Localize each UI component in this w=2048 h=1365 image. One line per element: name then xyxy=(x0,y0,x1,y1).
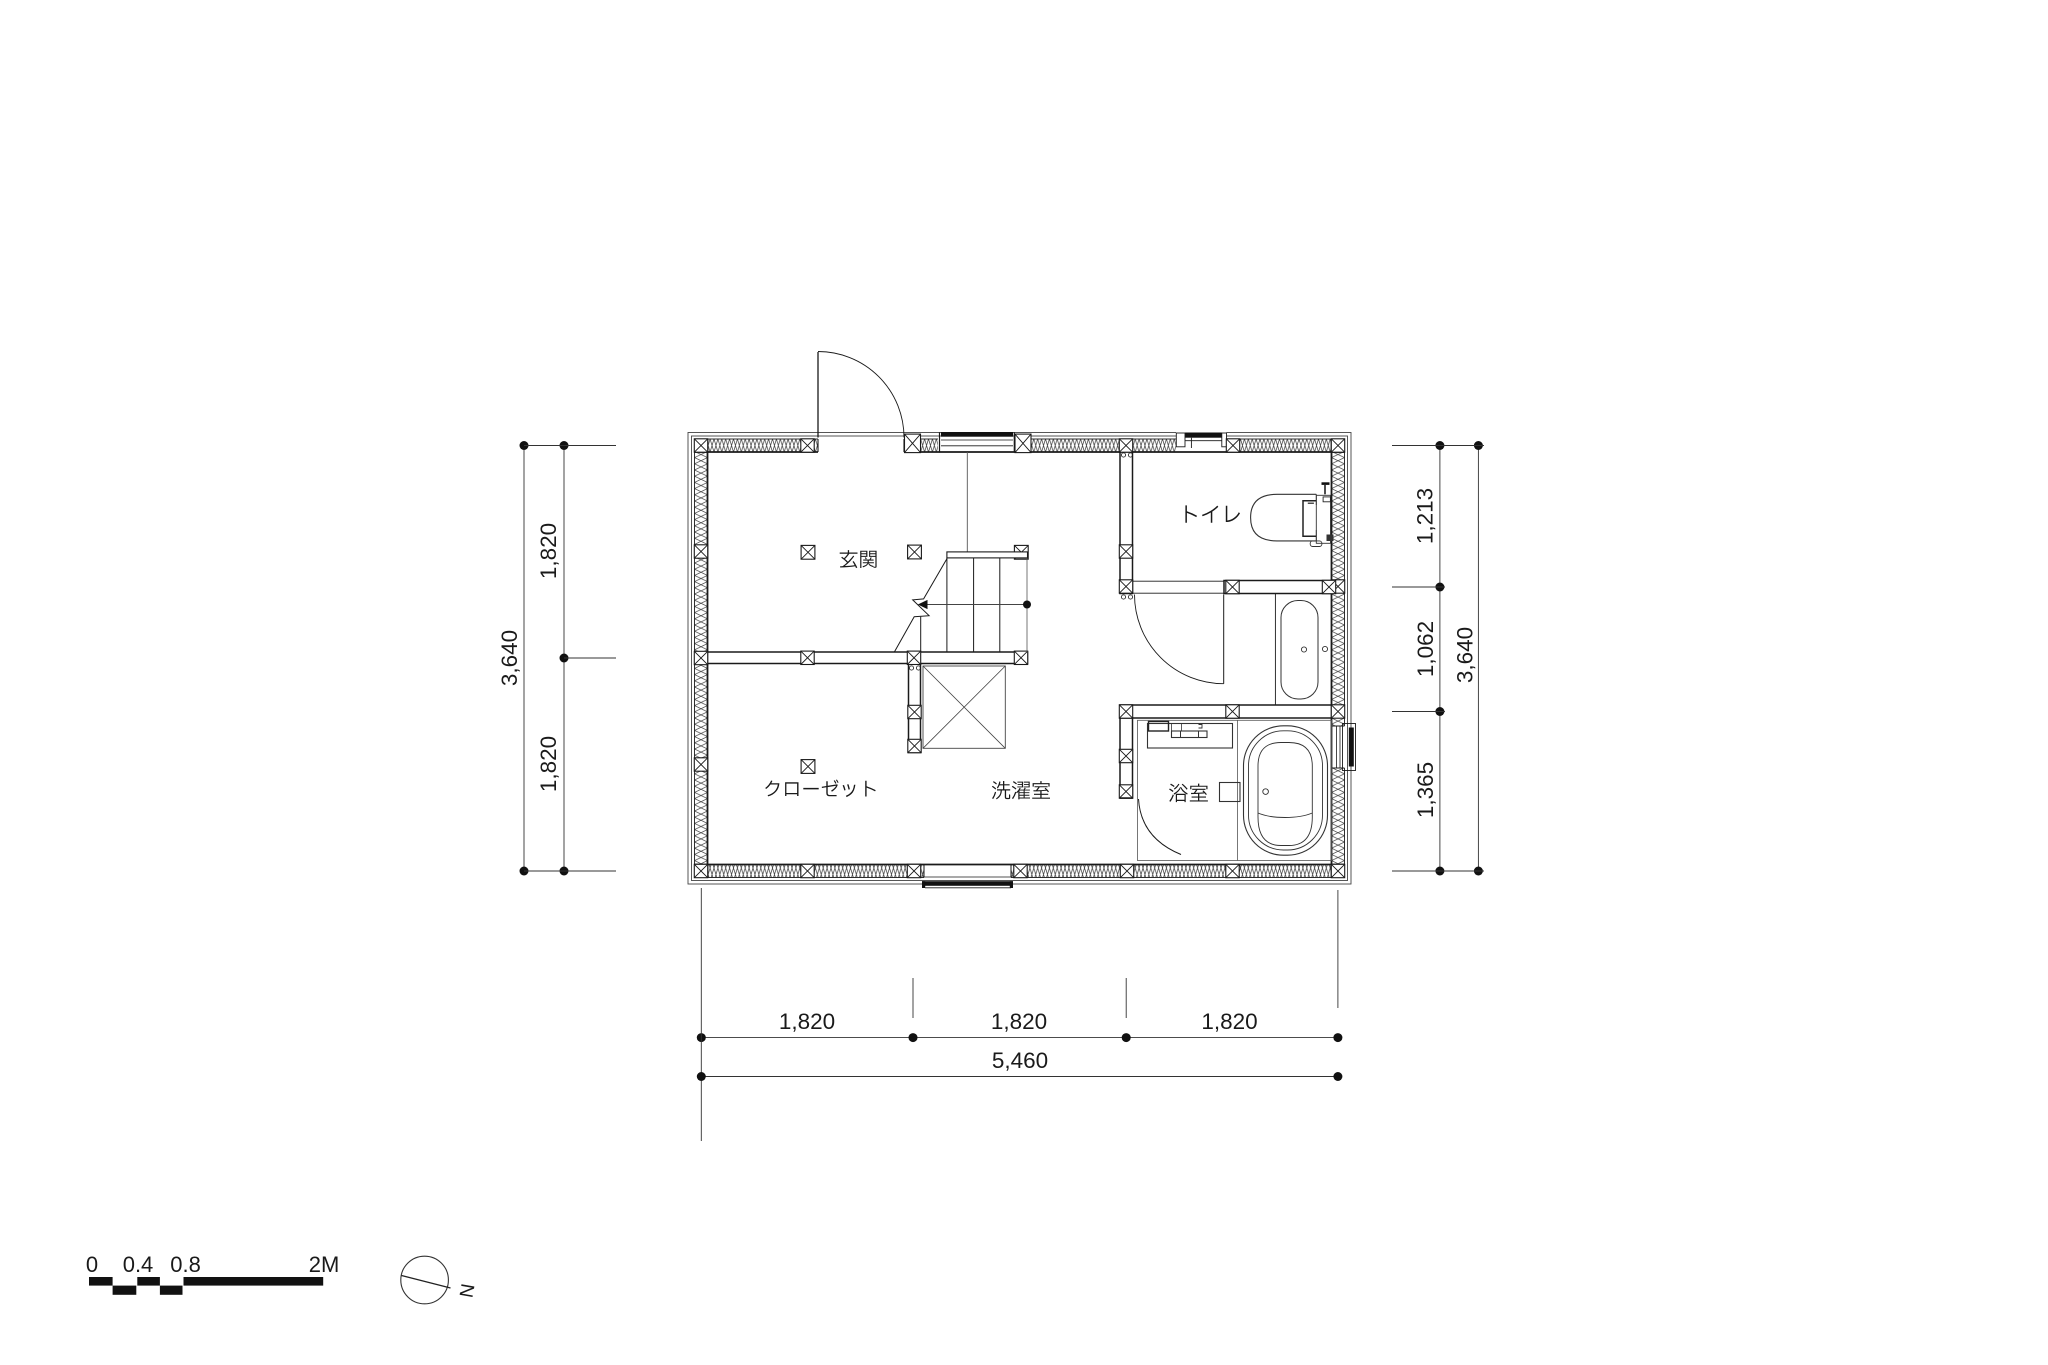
svg-text:0: 0 xyxy=(86,1252,98,1277)
svg-text:1,820: 1,820 xyxy=(1201,1009,1257,1034)
svg-text:2M: 2M xyxy=(309,1252,340,1277)
svg-text:1,062: 1,062 xyxy=(1413,621,1438,677)
svg-text:1,820: 1,820 xyxy=(536,523,561,579)
svg-text:5,460: 5,460 xyxy=(992,1048,1048,1073)
svg-text:1,820: 1,820 xyxy=(779,1009,835,1034)
svg-text:1,365: 1,365 xyxy=(1413,762,1438,818)
svg-text:0.4: 0.4 xyxy=(123,1252,154,1277)
svg-text:1,820: 1,820 xyxy=(536,736,561,792)
svg-text:0.8: 0.8 xyxy=(170,1252,201,1277)
svg-text:1,820: 1,820 xyxy=(991,1009,1047,1034)
svg-text:3,640: 3,640 xyxy=(1453,627,1478,683)
svg-text:3,640: 3,640 xyxy=(497,630,522,686)
svg-text:1,213: 1,213 xyxy=(1413,488,1438,544)
